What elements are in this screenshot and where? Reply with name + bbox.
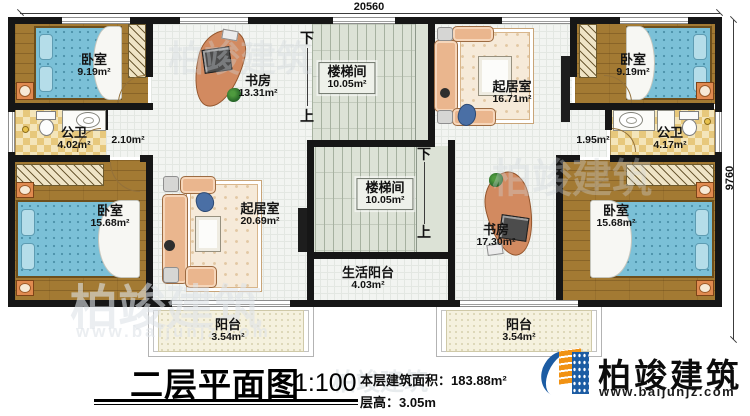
floor-area-line: 本层建筑面积：183.88m² <box>360 370 507 389</box>
window <box>715 112 722 152</box>
window <box>333 17 395 24</box>
room-area: 3.54m² <box>502 332 535 344</box>
window <box>180 17 248 24</box>
company-logo-icon <box>542 344 596 402</box>
room-name: 生活阳台 <box>342 266 394 280</box>
nightstand <box>696 280 714 296</box>
stair-down-label: 下 <box>417 144 431 164</box>
wall-bedroom-tr-bottom <box>570 103 714 110</box>
room-area: 4.02m² <box>57 140 90 152</box>
drawing-scale: 1:100 <box>294 369 357 398</box>
nightstand <box>16 82 34 100</box>
wall-left <box>8 17 15 307</box>
room-label-study-bottom: 书房 17.30m² <box>476 223 515 249</box>
room-label-stairwell-top: 楼梯间 10.05m² <box>318 62 375 94</box>
side-table <box>163 176 179 192</box>
logo-building-blue <box>572 352 589 394</box>
room-name: 公卫 <box>57 126 90 140</box>
room-label-bedroom-bottom-left: 卧室 15.68m² <box>90 204 129 230</box>
room-area: 20.69m² <box>240 216 279 228</box>
coffee-table <box>195 216 221 252</box>
room-label-balcony-left: 阳台 3.54m² <box>211 318 244 344</box>
room-name: 卧室 <box>90 204 129 218</box>
room-area: 4.17m² <box>653 140 686 152</box>
side-table <box>163 267 179 283</box>
wall-bedroom-tr-left <box>570 17 577 77</box>
wall-bath-right-side <box>605 110 612 130</box>
room-name: 卧室 <box>616 53 649 67</box>
room-label-bedroom-top-left: 卧室 9.19m² <box>77 53 110 79</box>
dimension-width: 20560 <box>339 1 399 13</box>
room-name: 卧室 <box>77 53 110 67</box>
floor-height-line: 层高：3.05m <box>360 392 436 411</box>
nightstand <box>16 280 34 296</box>
sink-basin <box>619 112 643 128</box>
room-name: 阳台 <box>211 318 244 332</box>
title-underline-thin <box>94 404 358 405</box>
room-label-service-balcony: 生活阳台 4.03m² <box>342 266 394 292</box>
room-label-living-bottom: 起居室 20.69m² <box>240 202 279 228</box>
room-area: 10.05m² <box>365 195 404 207</box>
wardrobe <box>128 24 146 78</box>
dimension-depth: 9760 <box>724 161 736 195</box>
room-name: 起居室 <box>492 80 531 94</box>
side-table <box>437 110 453 124</box>
room-area: 10.05m² <box>327 79 366 91</box>
window <box>8 112 15 152</box>
floor-area-label: 本层建筑面积： <box>360 373 451 388</box>
room-name: 阳台 <box>502 318 535 332</box>
room-area: 3.54m² <box>211 332 244 344</box>
room-name: 公卫 <box>653 126 686 140</box>
room-label-bath-right: 公卫 4.17m² <box>653 126 686 152</box>
room-area: 9.19m² <box>77 67 110 79</box>
nightstand <box>696 82 714 100</box>
room-name: 楼梯间 <box>327 65 366 79</box>
stair-arrow-line <box>424 162 425 224</box>
company-url: www.baijunjz.com <box>599 384 735 399</box>
wall-bedroom-br-left <box>556 155 563 307</box>
wall-stair-bottom-base <box>307 252 455 259</box>
room-label-bedroom-top-right: 卧室 9.19m² <box>616 53 649 79</box>
floor-lamp <box>440 88 450 98</box>
stair-down-label: 下 <box>300 28 314 48</box>
wall-bedroom-tl-right <box>146 17 153 77</box>
room-area: 13.31m² <box>238 88 277 100</box>
window <box>620 17 688 24</box>
room-name: 起居室 <box>240 202 279 216</box>
wall-bath-right-bottom-b <box>610 155 715 162</box>
room-label-hall-left: 2.10m² <box>111 135 144 147</box>
room-label-living-top: 起居室 16.71m² <box>492 80 531 106</box>
wall-bottom <box>8 300 722 307</box>
stair-up-label: 上 <box>417 222 431 242</box>
floor-plan-canvas: 柏竣建筑 柏竣建筑 柏竣建筑 www.baijunjz.com 柏竣建筑 卧室 … <box>0 0 750 416</box>
stair-arrow-line <box>307 48 308 106</box>
room-label-bath-left: 公卫 4.02m² <box>57 126 90 152</box>
room-label-hall-right: 1.95m² <box>576 135 609 147</box>
floor-height-value: 3.05m <box>399 395 436 410</box>
floor-area-value: 183.88m² <box>451 373 507 388</box>
room-area: 17.30m² <box>476 237 515 249</box>
room-name: 书房 <box>238 74 277 88</box>
floor-hall-left <box>106 108 152 157</box>
floor-lamp <box>164 240 175 251</box>
wardrobe <box>579 24 597 78</box>
floor-drain <box>22 126 29 133</box>
tv <box>561 56 570 122</box>
wall-stair-bottom-right <box>448 140 455 307</box>
room-area: 9.19m² <box>616 67 649 79</box>
sofa <box>185 266 217 288</box>
room-area: 1.95m² <box>576 135 609 147</box>
window <box>502 17 570 24</box>
wall-bedroom-tl-bottom <box>8 103 153 110</box>
room-name: 书房 <box>476 223 515 237</box>
title-underline <box>94 399 358 402</box>
toilet-bowl <box>39 119 54 136</box>
wall-bath-left-bottom-a <box>8 155 110 162</box>
room-label-study-top: 书房 13.31m² <box>238 74 277 100</box>
sofa <box>452 26 494 42</box>
wall-bedroom-bl-right <box>146 155 153 307</box>
room-area: 4.03m² <box>342 280 394 292</box>
dimension-line-top <box>20 13 720 14</box>
tv <box>298 208 307 252</box>
floor-hall-right <box>571 108 607 157</box>
room-name: 楼梯间 <box>365 181 404 195</box>
wall-right <box>715 17 722 307</box>
balcony-door-left <box>172 300 290 307</box>
wall-stair-bottom-left <box>307 140 314 307</box>
room-label-bedroom-bottom-right: 卧室 15.68m² <box>596 204 635 230</box>
room-area: 15.68m² <box>596 218 635 230</box>
room-label-stairwell-bottom: 楼梯间 10.05m² <box>356 178 413 210</box>
room-area: 16.71m² <box>492 94 531 106</box>
side-table <box>437 27 453 41</box>
room-area: 15.68m² <box>90 218 129 230</box>
stair-up-label: 上 <box>300 106 314 126</box>
floor-drain <box>704 118 711 125</box>
room-area: 2.10m² <box>111 135 144 147</box>
computer-monitor <box>201 46 232 74</box>
room-name: 卧室 <box>596 204 635 218</box>
floor-height-label: 层高： <box>360 395 399 410</box>
balcony-door-right <box>460 300 578 307</box>
nightstand <box>16 182 34 198</box>
nightstand <box>696 182 714 198</box>
sofa <box>434 40 458 112</box>
room-label-balcony-right: 阳台 3.54m² <box>502 318 535 344</box>
window <box>62 17 130 24</box>
sofa <box>180 176 216 194</box>
